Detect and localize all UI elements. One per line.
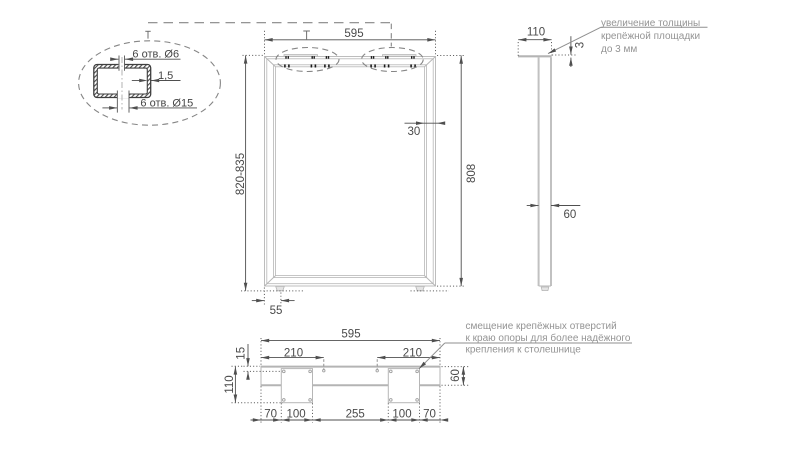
- svg-text:100: 100: [287, 409, 306, 421]
- svg-text:70: 70: [423, 409, 436, 421]
- svg-text:210: 210: [284, 347, 303, 359]
- svg-text:30: 30: [408, 126, 421, 138]
- svg-text:6 отв. Ø15: 6 отв. Ø15: [140, 97, 193, 109]
- svg-text:110: 110: [527, 26, 545, 38]
- svg-text:1,5: 1,5: [158, 70, 173, 82]
- svg-text:60: 60: [564, 209, 577, 221]
- svg-text:крепления к столешнице: крепления к столешнице: [466, 344, 582, 355]
- svg-text:210: 210: [403, 347, 422, 359]
- svg-text:3: 3: [574, 42, 586, 48]
- svg-text:смещение крепёжных отверстий: смещение крепёжных отверстий: [466, 321, 617, 332]
- svg-text:крепёжной площадки: крепёжной площадки: [601, 31, 700, 42]
- svg-text:15: 15: [235, 347, 247, 360]
- svg-text:820-835: 820-835: [235, 153, 247, 195]
- svg-text:до 3 мм: до 3 мм: [601, 44, 637, 55]
- svg-text:110: 110: [224, 375, 236, 393]
- svg-text:595: 595: [344, 28, 363, 40]
- svg-text:55: 55: [270, 305, 283, 317]
- svg-text:70: 70: [264, 409, 277, 421]
- svg-text:60: 60: [450, 369, 462, 382]
- svg-text:6 отв. Ø6: 6 отв. Ø6: [132, 49, 179, 61]
- svg-text:808: 808: [466, 164, 478, 183]
- svg-text:100: 100: [392, 409, 411, 421]
- svg-text:255: 255: [346, 409, 365, 421]
- svg-text:к краю опоры для более надёжно: к краю опоры для более надёжного: [466, 332, 631, 344]
- svg-text:595: 595: [341, 328, 360, 340]
